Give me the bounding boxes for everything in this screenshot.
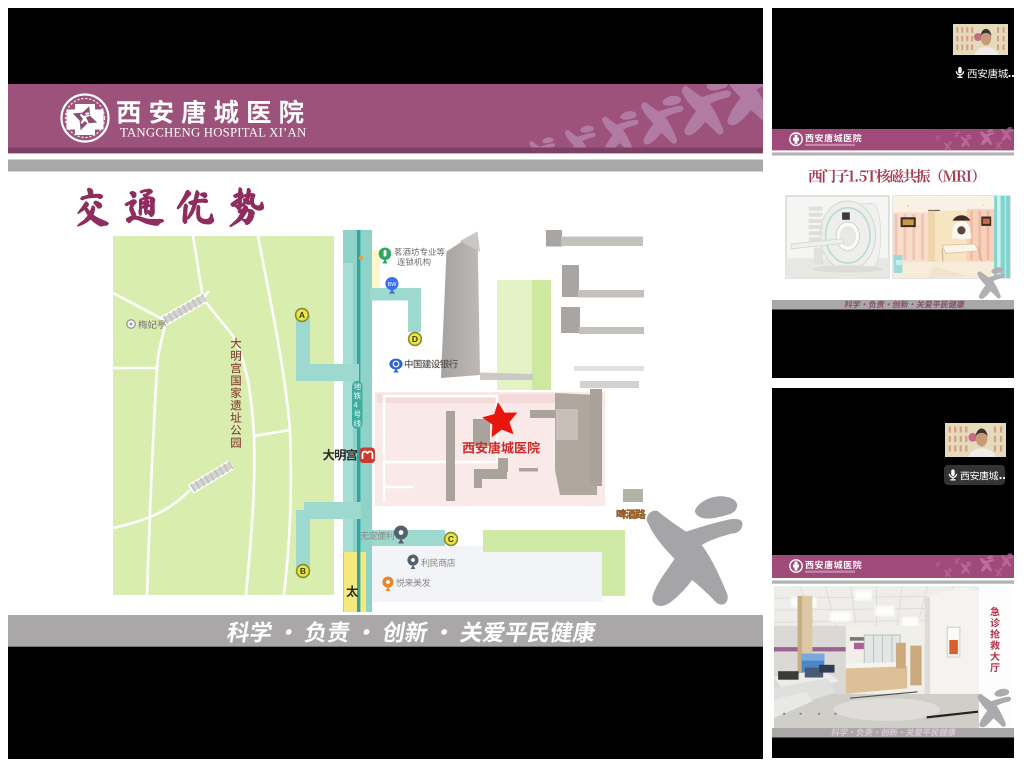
svg-text:TANGCHENG HOSPITAL XI’AN: TANGCHENG HOSPITAL XI’AN [120, 126, 306, 140]
svg-text:C: C [448, 534, 454, 544]
svg-text:BW: BW [388, 282, 398, 288]
svg-text:D: D [412, 334, 418, 344]
svg-text:B: B [300, 566, 306, 576]
svg-text:A: A [299, 310, 305, 320]
